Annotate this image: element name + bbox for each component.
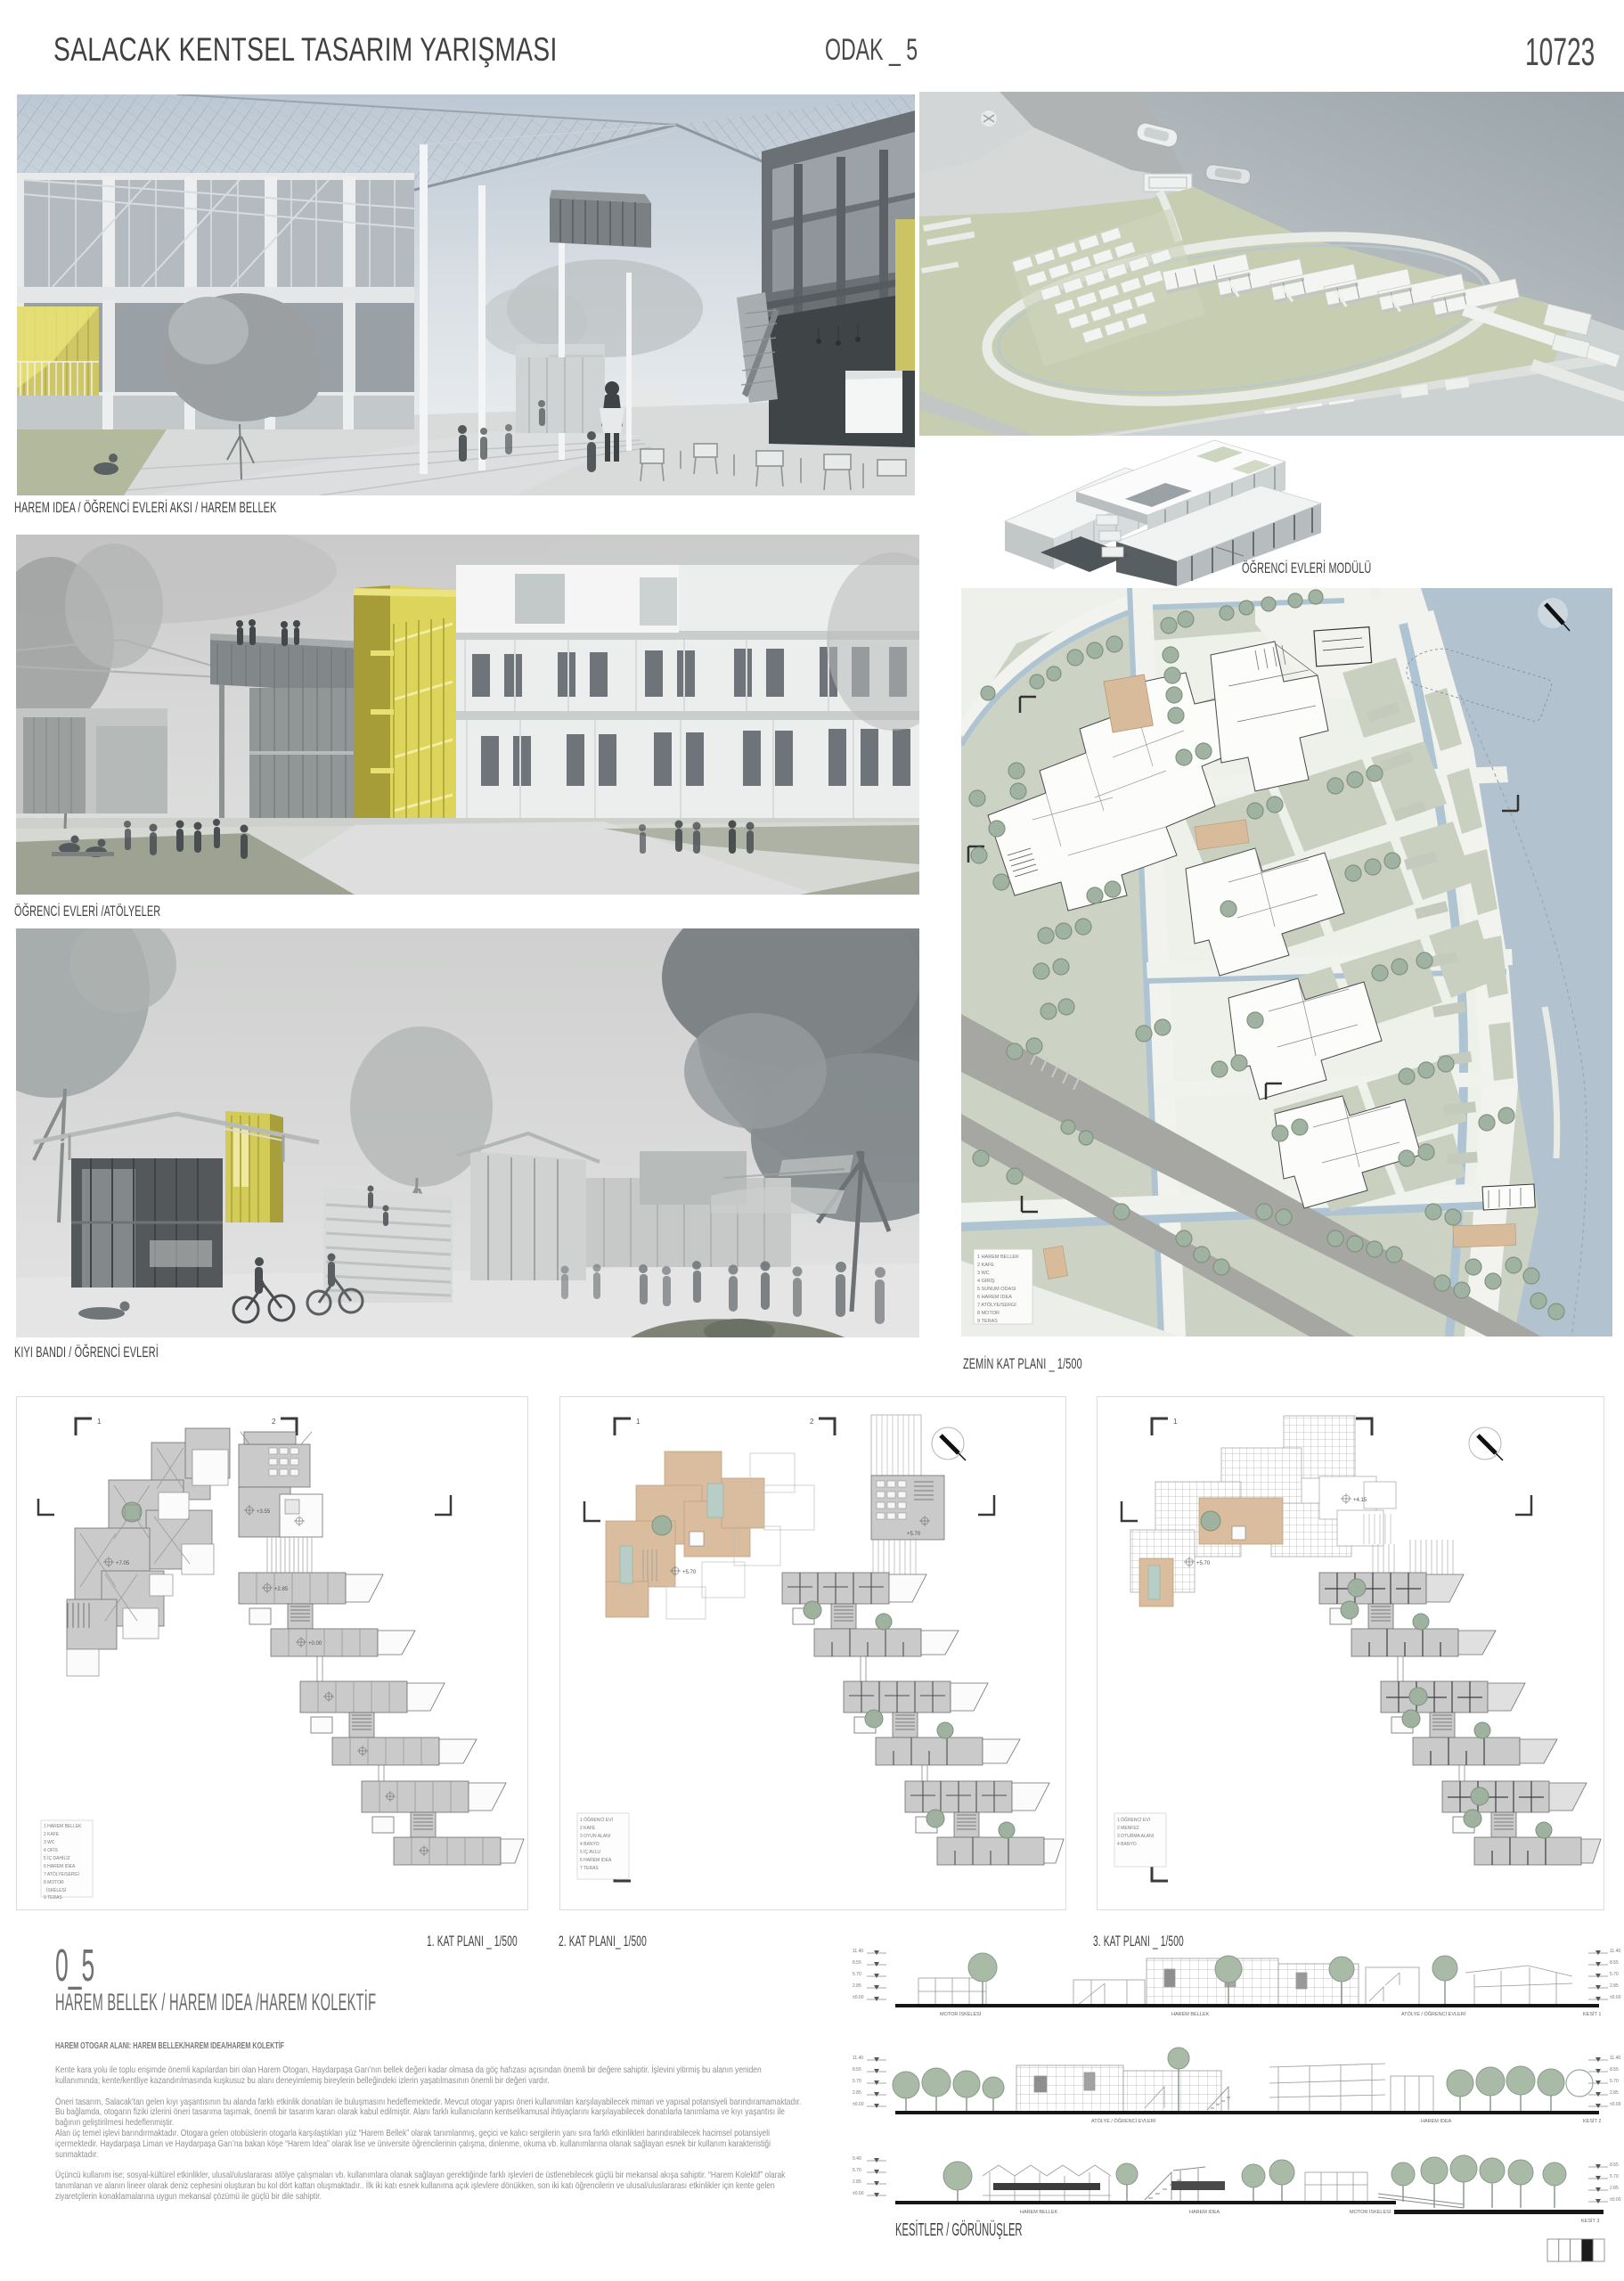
svg-text:+5.70: +5.70 bbox=[1196, 1561, 1211, 1566]
svg-text:11.40: 11.40 bbox=[1610, 2056, 1620, 2061]
svg-text:8.55: 8.55 bbox=[853, 1960, 861, 1966]
svg-text:7 ATÖLYE/SERGİ: 7 ATÖLYE/SERGİ bbox=[977, 1302, 1016, 1308]
svg-text:İSKELESİ: İSKELESİ bbox=[46, 1887, 66, 1893]
svg-text:+5.70: +5.70 bbox=[682, 1570, 697, 1575]
svg-text:6 HAREM IDEA: 6 HAREM IDEA bbox=[977, 1295, 1012, 1300]
svg-text:KESİT 3: KESİT 3 bbox=[1581, 2218, 1599, 2224]
svg-text:+5.70: +5.70 bbox=[907, 1532, 921, 1537]
svg-text:HAREM BELLEK: HAREM BELLEK bbox=[1171, 2012, 1210, 2017]
svg-text:5.70: 5.70 bbox=[853, 2079, 861, 2084]
svg-text:KESİT 1: KESİT 1 bbox=[1583, 2011, 1601, 2017]
svg-text:+2.85: +2.85 bbox=[274, 1587, 289, 1592]
svg-text:4 GİRİŞ: 4 GİRİŞ bbox=[977, 1278, 995, 1284]
svg-text:1 HAREM BELLEK: 1 HAREM BELLEK bbox=[44, 1824, 82, 1829]
svg-text:±0.00: ±0.00 bbox=[853, 2191, 864, 2196]
svg-text:1: 1 bbox=[1173, 1418, 1178, 1426]
svg-text:2 KAFE: 2 KAFE bbox=[977, 1263, 994, 1268]
svg-text:5.70: 5.70 bbox=[853, 2168, 861, 2173]
svg-text:1 ÖĞRENCİ EVİ: 1 ÖĞRENCİ EVİ bbox=[580, 1817, 613, 1823]
svg-text:8.55: 8.55 bbox=[1610, 2162, 1619, 2168]
svg-text:7 TERAS: 7 TERAS bbox=[580, 1866, 599, 1871]
svg-text:8.55: 8.55 bbox=[1610, 1960, 1619, 1966]
svg-text:3 WC: 3 WC bbox=[977, 1271, 990, 1276]
svg-text:2 KAFE: 2 KAFE bbox=[44, 1832, 60, 1837]
svg-text:2.85: 2.85 bbox=[853, 1983, 861, 1989]
svg-text:ATÖLYE / ÖĞRENCİ EVLERİ: ATÖLYE / ÖĞRENCİ EVLERİ bbox=[1091, 2118, 1156, 2124]
svg-text:1: 1 bbox=[636, 1418, 641, 1426]
svg-text:±0.00: ±0.00 bbox=[1610, 2102, 1621, 2107]
svg-text:1: 1 bbox=[97, 1418, 102, 1426]
svg-text:7 ATÖLYE/SERGİ: 7 ATÖLYE/SERGİ bbox=[44, 1871, 79, 1877]
svg-text:6 HAREM IDEA: 6 HAREM IDEA bbox=[580, 1858, 612, 1863]
svg-text:KESİT 2: KESİT 2 bbox=[1583, 2118, 1601, 2124]
svg-text:2.85: 2.85 bbox=[853, 2179, 861, 2185]
svg-text:±0.00: ±0.00 bbox=[853, 2102, 864, 2107]
svg-text:1 ÖĞRENCİ EVİ: 1 ÖĞRENCİ EVİ bbox=[1117, 1817, 1150, 1823]
svg-text:5 İÇ DAHİLİZ: 5 İÇ DAHİLİZ bbox=[44, 1855, 70, 1861]
svg-text:4 BANYO: 4 BANYO bbox=[580, 1842, 600, 1847]
svg-text:+3.55: +3.55 bbox=[257, 1509, 271, 1515]
svg-text:2: 2 bbox=[272, 1418, 276, 1426]
svg-text:2 KAFE: 2 KAFE bbox=[580, 1826, 596, 1831]
svg-text:11.40: 11.40 bbox=[853, 1949, 863, 1954]
svg-text:±0.00: ±0.00 bbox=[1610, 1995, 1621, 2000]
svg-text:11.40: 11.40 bbox=[1610, 1949, 1620, 1954]
svg-text:3 WC: 3 WC bbox=[44, 1840, 55, 1845]
svg-text:+0.00: +0.00 bbox=[308, 1641, 322, 1647]
svg-text:8 MOTOR: 8 MOTOR bbox=[977, 1311, 1000, 1316]
svg-text:2: 2 bbox=[810, 1418, 814, 1426]
svg-text:5.70: 5.70 bbox=[853, 1972, 861, 1977]
svg-text:9 TERAS: 9 TERAS bbox=[44, 1895, 62, 1901]
svg-text:8 MOTOR: 8 MOTOR bbox=[44, 1880, 64, 1885]
svg-text:+7.05: +7.05 bbox=[116, 1561, 130, 1566]
svg-text:5 SUNUM ODASI: 5 SUNUM ODASI bbox=[977, 1287, 1016, 1292]
svg-text:2.85: 2.85 bbox=[1610, 2090, 1619, 2096]
svg-text:9 TERAS: 9 TERAS bbox=[977, 1319, 998, 1324]
svg-text:±0.00: ±0.00 bbox=[1610, 2197, 1621, 2203]
svg-text:11.40: 11.40 bbox=[853, 2056, 863, 2061]
svg-text:4 BANYO: 4 BANYO bbox=[1117, 1842, 1137, 1847]
svg-text:±0.00: ±0.00 bbox=[853, 1995, 864, 2000]
svg-text:5.70: 5.70 bbox=[1610, 2174, 1619, 2179]
svg-text:2.85: 2.85 bbox=[1610, 2186, 1619, 2191]
svg-text:ATÖLYE / ÖĞRENCİ EVLERİ: ATÖLYE / ÖĞRENCİ EVLERİ bbox=[1401, 2011, 1466, 2017]
svg-text:HAREM IDEA: HAREM IDEA bbox=[1421, 2119, 1452, 2124]
svg-text:HAREM IDEA: HAREM IDEA bbox=[1189, 2210, 1220, 2215]
svg-text:6 HAREM IDEA: 6 HAREM IDEA bbox=[44, 1864, 76, 1869]
svg-text:HAREM BELLEK: HAREM BELLEK bbox=[1020, 2210, 1058, 2215]
svg-text:4 OFİS: 4 OFİS bbox=[44, 1847, 59, 1853]
svg-text:2 MENFEZ: 2 MENFEZ bbox=[1117, 1826, 1139, 1831]
svg-text:8.55: 8.55 bbox=[1610, 2067, 1619, 2073]
svg-text:2.85: 2.85 bbox=[853, 2090, 861, 2096]
svg-text:5.70: 5.70 bbox=[1610, 2079, 1619, 2084]
svg-text:5 İÇ AVLU: 5 İÇ AVLU bbox=[580, 1849, 600, 1855]
svg-text:+4.15: +4.15 bbox=[1353, 1498, 1367, 1503]
svg-text:1 HAREM BELLEK: 1 HAREM BELLEK bbox=[977, 1255, 1019, 1260]
svg-text:MOTOR İSKELESİ: MOTOR İSKELESİ bbox=[940, 2011, 982, 2017]
svg-text:9.40: 9.40 bbox=[853, 2156, 861, 2162]
svg-text:3 OYUN ALANI: 3 OYUN ALANI bbox=[580, 1834, 610, 1839]
svg-text:MOTOR İSKELESİ: MOTOR İSKELESİ bbox=[1350, 2209, 1391, 2215]
svg-text:2.85: 2.85 bbox=[1610, 1983, 1619, 1989]
svg-text:3 OTURMA ALANI: 3 OTURMA ALANI bbox=[1117, 1834, 1154, 1839]
svg-text:8.55: 8.55 bbox=[853, 2067, 861, 2073]
svg-text:5.70: 5.70 bbox=[1610, 1972, 1619, 1977]
